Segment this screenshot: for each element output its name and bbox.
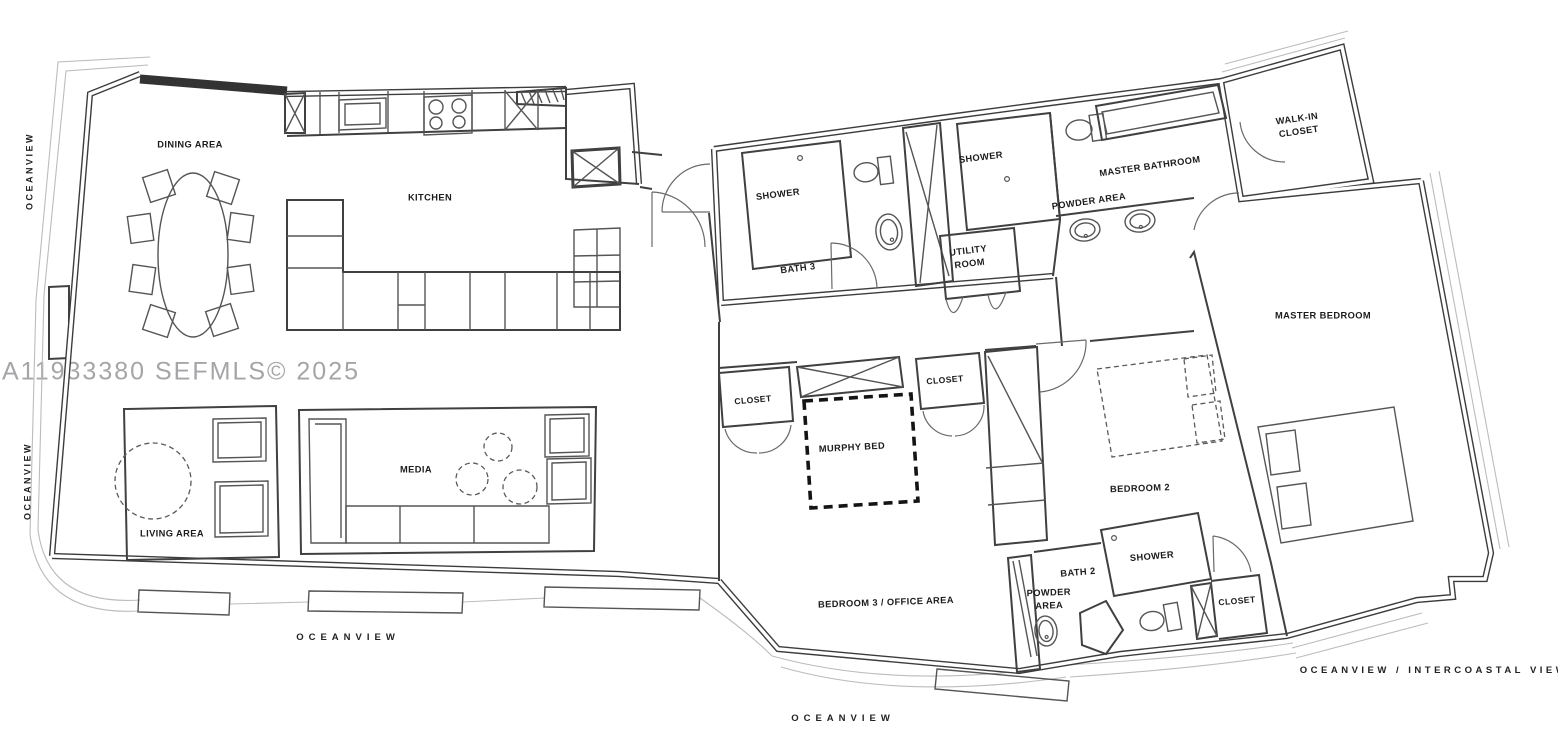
- room-label-dining-area: DINING AREA: [157, 138, 223, 151]
- door-swings: [652, 122, 1285, 572]
- room-label-utility-room: UTILITY ROOM: [949, 242, 990, 273]
- bath3-fixtures: [742, 141, 904, 269]
- floor-plan-canvas: [0, 0, 1558, 751]
- room-label-media: MEDIA: [400, 463, 432, 476]
- view-label-bottom-center: OCEANVIEW: [791, 712, 895, 726]
- bath2-powder-line1: POWDER: [1026, 586, 1071, 601]
- media-room-furniture: [299, 407, 596, 554]
- view-label-left-bottom: OCEANVIEW: [21, 442, 34, 520]
- room-label-kitchen: KITCHEN: [408, 191, 452, 204]
- dining-table: [127, 170, 254, 338]
- elevator-shaft-icon: [285, 93, 953, 286]
- view-label-bottom-right: OCEANVIEW / INTERCOASTAL VIEW: [1300, 664, 1558, 678]
- room-label-bedroom-2: BEDROOM 2: [1110, 481, 1170, 497]
- room-label-master-bedroom: MASTER BEDROOM: [1275, 309, 1371, 322]
- floor-plan-page: A11933380 SEFMLS© 2025: [0, 0, 1558, 751]
- bath2-powder-line2: AREA: [1027, 599, 1072, 614]
- view-label-bottom-left: OCEANVIEW: [296, 631, 400, 645]
- kitchen-island: [287, 200, 620, 330]
- foyer-cabinet: [574, 228, 620, 307]
- room-label-living-area: LIVING AREA: [140, 527, 204, 540]
- view-label-left-top: OCEANVIEW: [23, 132, 36, 210]
- room-label-bath2-powder-area: POWDER AREA: [1026, 586, 1071, 614]
- master-bed: [1258, 407, 1413, 543]
